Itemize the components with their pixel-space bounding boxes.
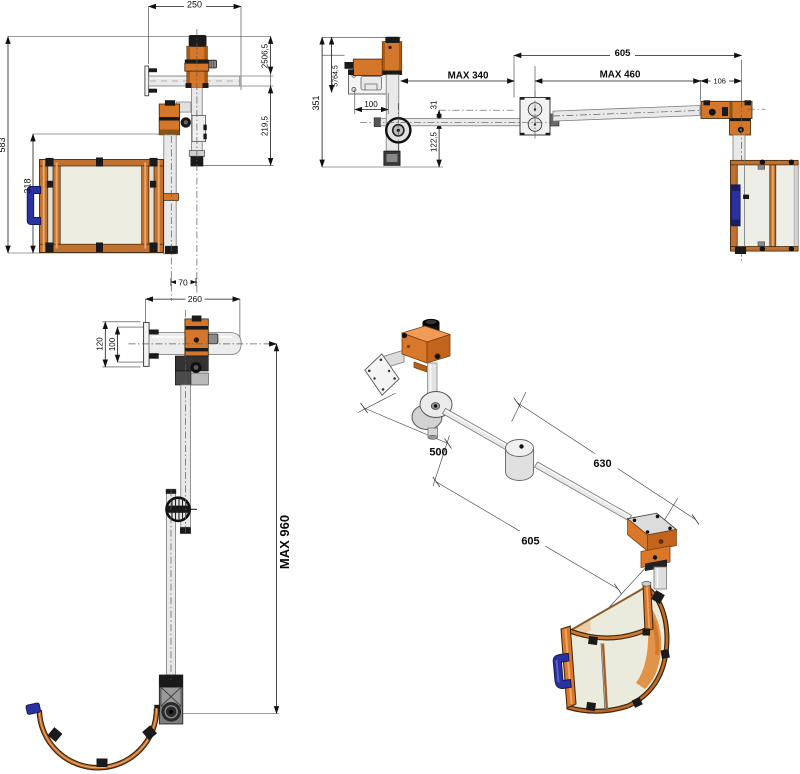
svg-text:500: 500 (429, 447, 447, 459)
svg-text:MAX 340: MAX 340 (448, 71, 489, 82)
svg-text:106: 106 (713, 76, 726, 85)
svg-text:260: 260 (188, 294, 202, 304)
svg-text:583: 583 (0, 137, 7, 152)
svg-text:219,5: 219,5 (261, 115, 270, 136)
svg-text:250: 250 (187, 0, 202, 10)
svg-text:MAX 460: MAX 460 (600, 70, 641, 81)
svg-text:605: 605 (615, 48, 632, 59)
svg-text:351: 351 (311, 95, 321, 110)
svg-text:120: 120 (96, 337, 105, 351)
svg-text:122,5: 122,5 (430, 131, 439, 152)
svg-text:2506,5: 2506,5 (261, 43, 270, 68)
svg-text:31: 31 (430, 100, 439, 109)
svg-text:70: 70 (178, 277, 188, 287)
svg-text:630: 630 (593, 458, 611, 470)
svg-text:318: 318 (23, 178, 33, 193)
svg-text:100: 100 (364, 100, 378, 109)
svg-text:5764,5: 5764,5 (333, 65, 340, 87)
svg-text:605: 605 (521, 536, 539, 548)
svg-text:100: 100 (108, 337, 117, 351)
svg-text:MAX 960: MAX 960 (277, 515, 292, 569)
